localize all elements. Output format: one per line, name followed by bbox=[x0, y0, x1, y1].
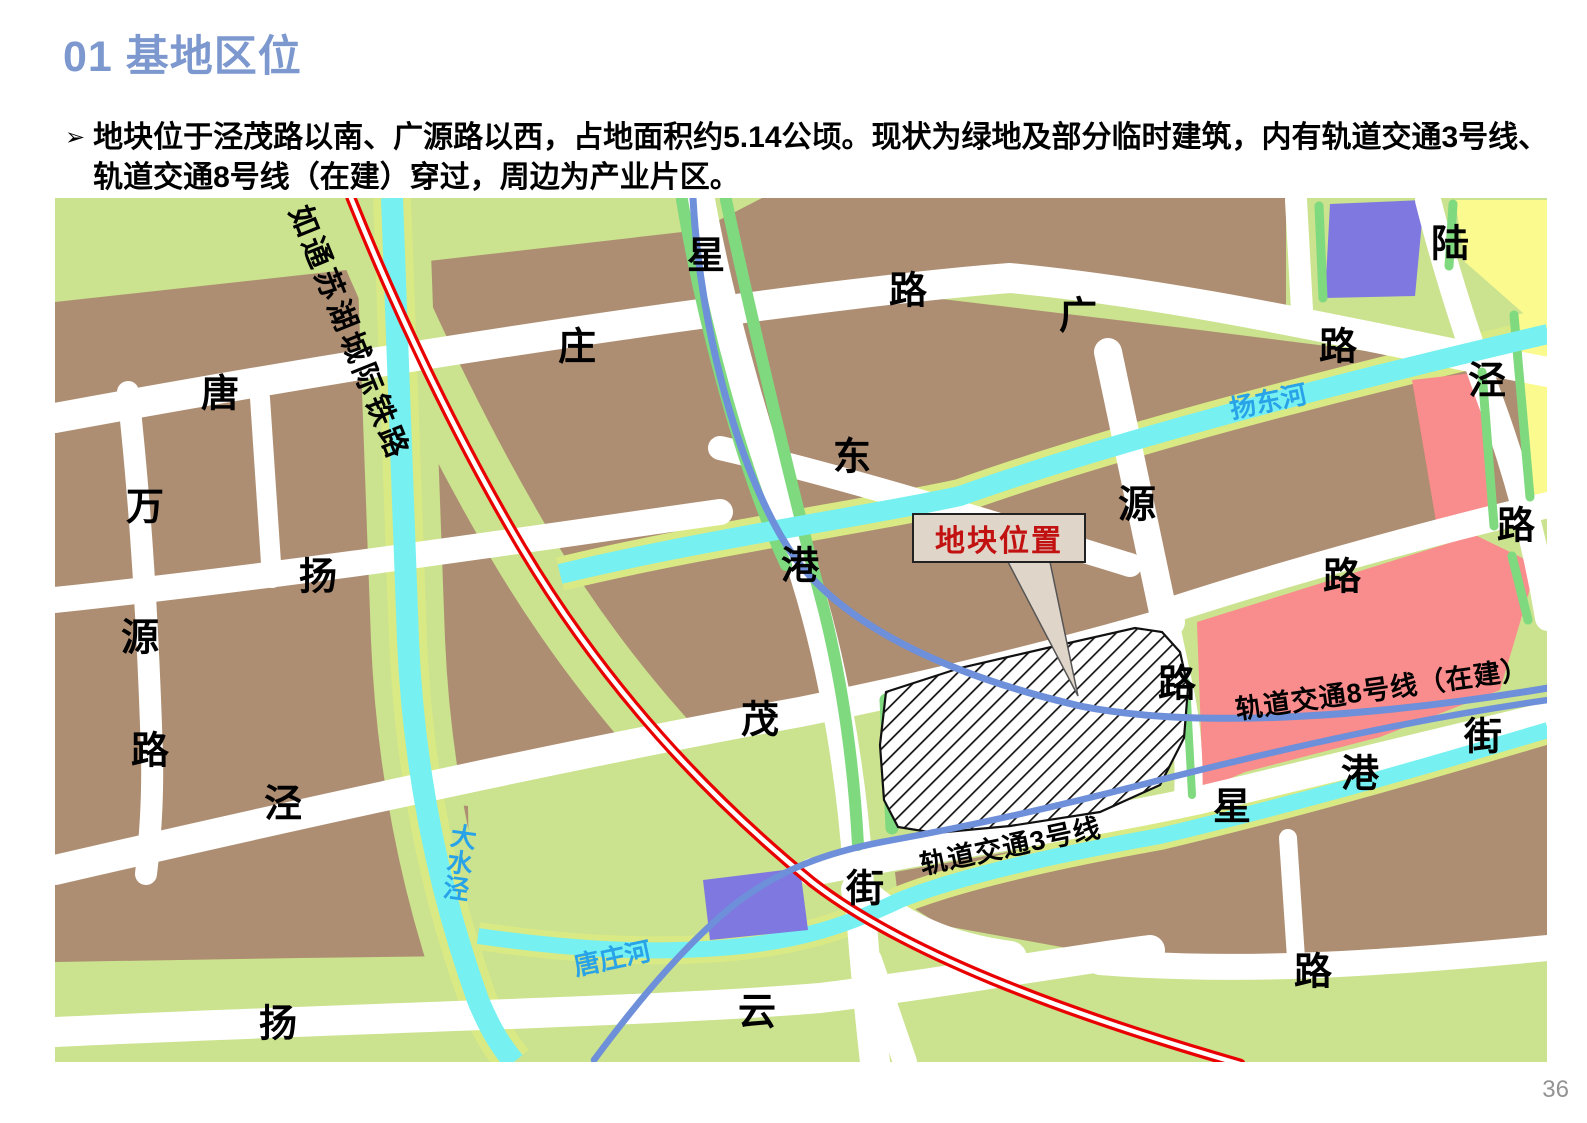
site-callout: 地块位置 bbox=[912, 513, 1086, 563]
site-location-map: 星路庄唐广路陆泾路东源万扬港路源路茂路街港泾星街路云扬如通苏湖城际铁路轨道交通8… bbox=[55, 198, 1547, 1062]
site-callout-label: 地块位置 bbox=[935, 516, 1063, 560]
map-canvas bbox=[55, 198, 1547, 1062]
purple-block bbox=[703, 868, 808, 940]
bullet-item: ➢ 地块位于泾茂路以南、广源路以西，占地面积约5.14公顷。现状为绿地及部分临时… bbox=[65, 118, 1557, 198]
bullet-arrow-icon: ➢ bbox=[65, 118, 85, 198]
bullet-text: 地块位于泾茂路以南、广源路以西，占地面积约5.14公顷。现状为绿地及部分临时建筑… bbox=[93, 118, 1557, 198]
page-number: 36 bbox=[1542, 1076, 1569, 1104]
page-title: 01 基地区位 bbox=[63, 22, 302, 84]
